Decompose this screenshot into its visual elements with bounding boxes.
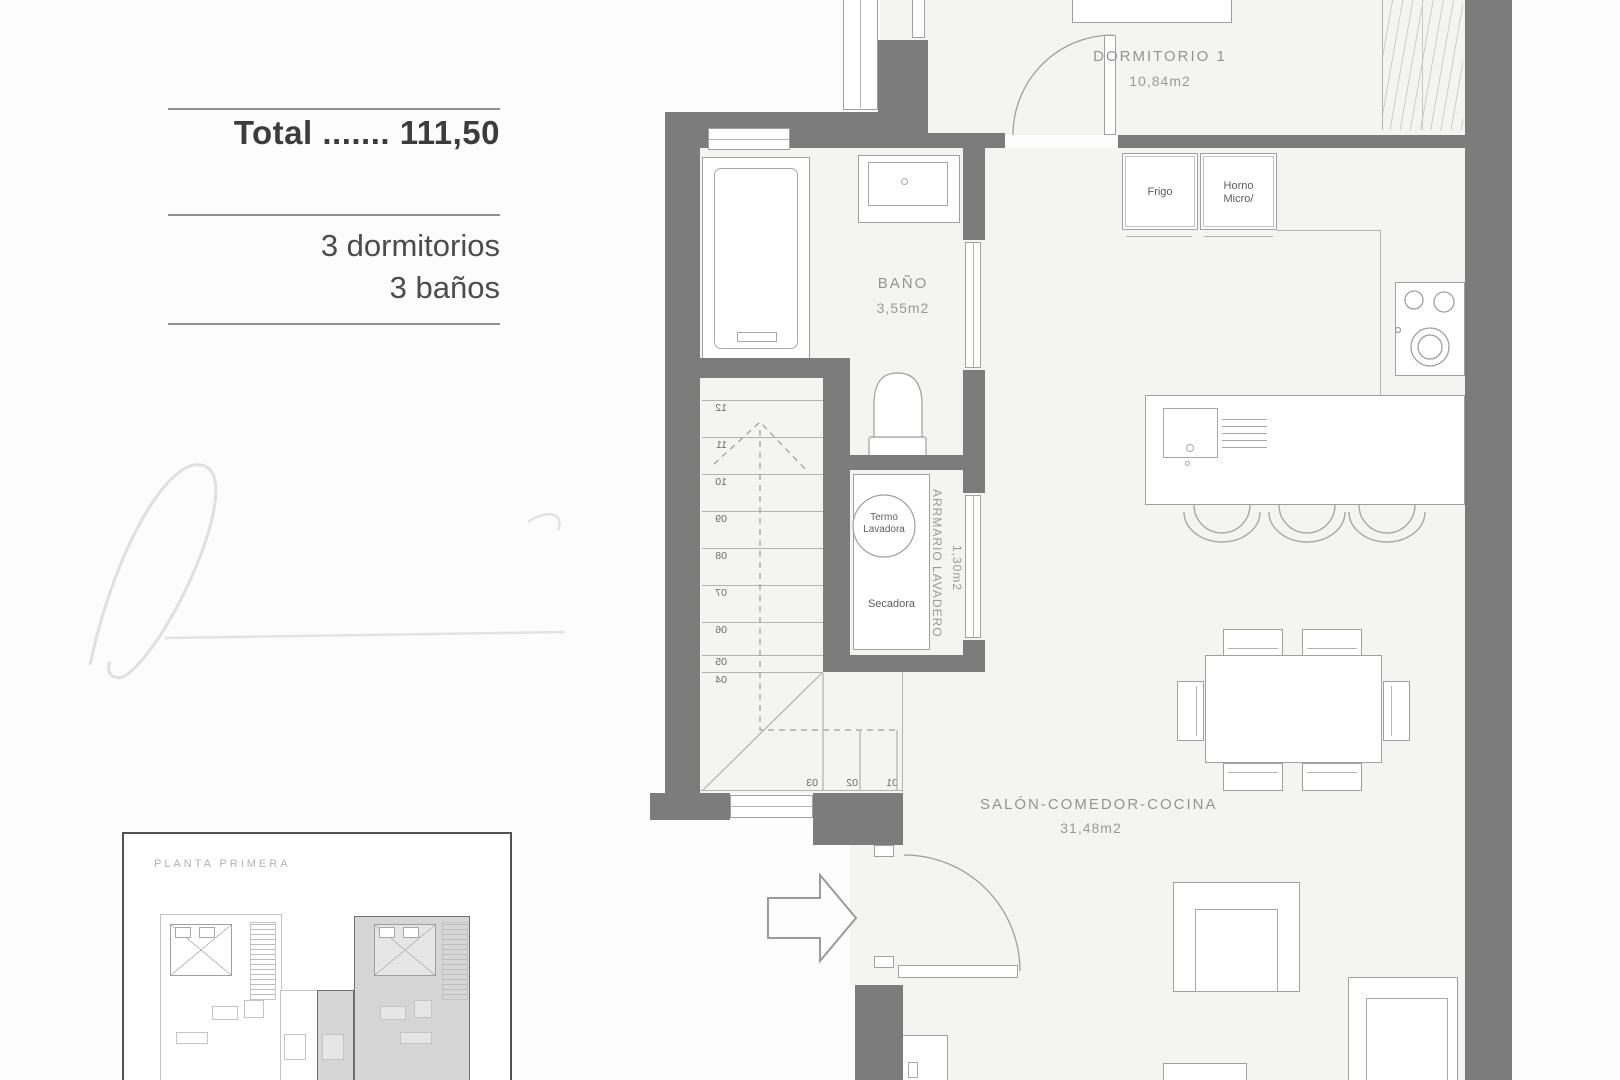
floorplan-page: Total ....... 111,50 3 dormitorios 3 bañ… xyxy=(0,0,1620,1080)
wall-bath-east xyxy=(963,148,985,240)
wall-stairs-east xyxy=(823,358,850,672)
cooktop-knob-icon xyxy=(1396,328,1401,333)
stool-icon xyxy=(1184,505,1260,542)
room-name-lavadero: ARRMARIO LAVADERO xyxy=(930,468,944,658)
wall-right xyxy=(1465,0,1512,1080)
wall-left xyxy=(665,112,700,793)
room-area-lavadero: 1,30m2 xyxy=(950,523,964,613)
washer-label-line1: Termo xyxy=(856,512,912,524)
room-name-bano: BAÑO xyxy=(855,275,951,292)
wall-laundry-north xyxy=(835,455,983,470)
window-line xyxy=(973,496,974,637)
room-name-salon: SALÓN-COMEDOR-COCINA xyxy=(980,796,1202,813)
bar-stools xyxy=(1184,505,1425,542)
window-line xyxy=(973,243,974,367)
burner-icon xyxy=(1434,292,1454,312)
room-name-dormitorio1: DORMITORIO 1 xyxy=(1070,48,1250,65)
wall-laundry-south xyxy=(823,655,983,672)
toilet-bowl xyxy=(874,373,922,437)
window xyxy=(965,242,981,368)
wall-entry-north xyxy=(813,793,903,845)
window xyxy=(965,495,981,638)
cooktop-burners xyxy=(1396,291,1455,366)
wall-bedroom-south xyxy=(1118,135,1465,148)
burner-icon xyxy=(1411,328,1449,366)
wall-bath-stairs xyxy=(700,358,833,378)
stool-icon xyxy=(1269,505,1345,542)
wall-laundry-east xyxy=(963,640,985,672)
dryer-label: Secadora xyxy=(853,598,930,610)
entry-arrow-icon xyxy=(768,875,856,961)
window-line xyxy=(731,806,812,807)
oven-label-line1: Horno xyxy=(1200,180,1277,192)
wall-bath-east xyxy=(963,370,985,493)
window-line xyxy=(709,139,789,140)
room-area-dormitorio1: 10,84m2 xyxy=(1070,73,1250,89)
stair-window xyxy=(730,795,813,818)
burner-icon xyxy=(1418,335,1442,359)
burner-icon xyxy=(1405,291,1423,309)
oven-label-line2: Micro/ xyxy=(1200,193,1277,205)
room-area-bano: 3,55m2 xyxy=(855,300,951,316)
fridge-label: Frigo xyxy=(1122,186,1198,198)
wall-corner xyxy=(650,793,730,820)
wall-entry-south xyxy=(855,985,903,1080)
toilet-tank xyxy=(869,437,926,457)
bathroom-window xyxy=(708,128,790,150)
plan-linework xyxy=(0,0,1620,1080)
stair-winder-treads xyxy=(703,673,897,790)
stool-icon xyxy=(1349,505,1425,542)
room-area-salon: 31,48m2 xyxy=(980,820,1202,836)
entry-door-arc xyxy=(904,855,1020,971)
wall-bath-north xyxy=(665,112,928,148)
washer-label-line2: Lavadora xyxy=(856,524,912,536)
wall-bedroom-south-left xyxy=(928,133,1005,148)
